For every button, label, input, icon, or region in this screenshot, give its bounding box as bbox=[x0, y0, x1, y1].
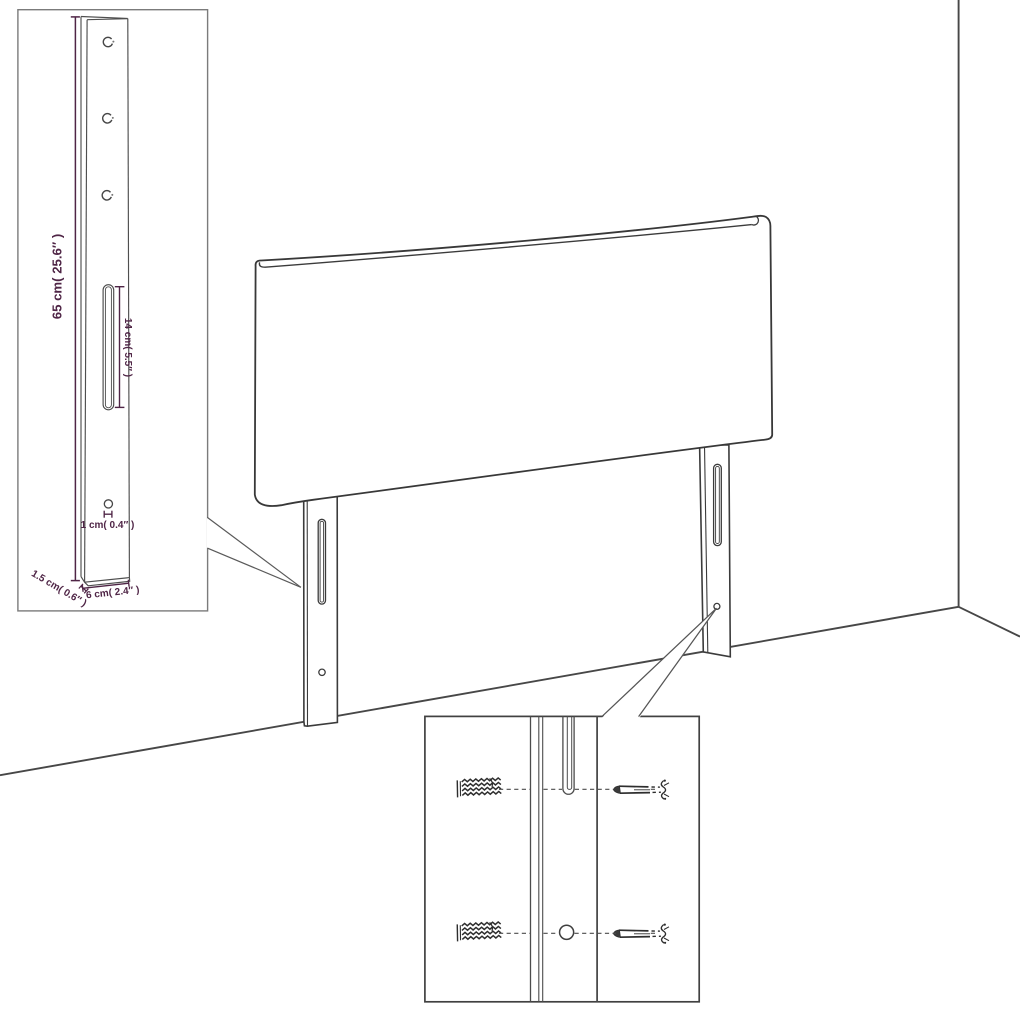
svg-text:1 cm( 0.4″ ): 1 cm( 0.4″ ) bbox=[81, 520, 135, 531]
svg-text:65 cm( 25.6″ ): 65 cm( 25.6″ ) bbox=[50, 234, 65, 320]
svg-text:14 cm( 5.5″ ): 14 cm( 5.5″ ) bbox=[122, 318, 133, 377]
